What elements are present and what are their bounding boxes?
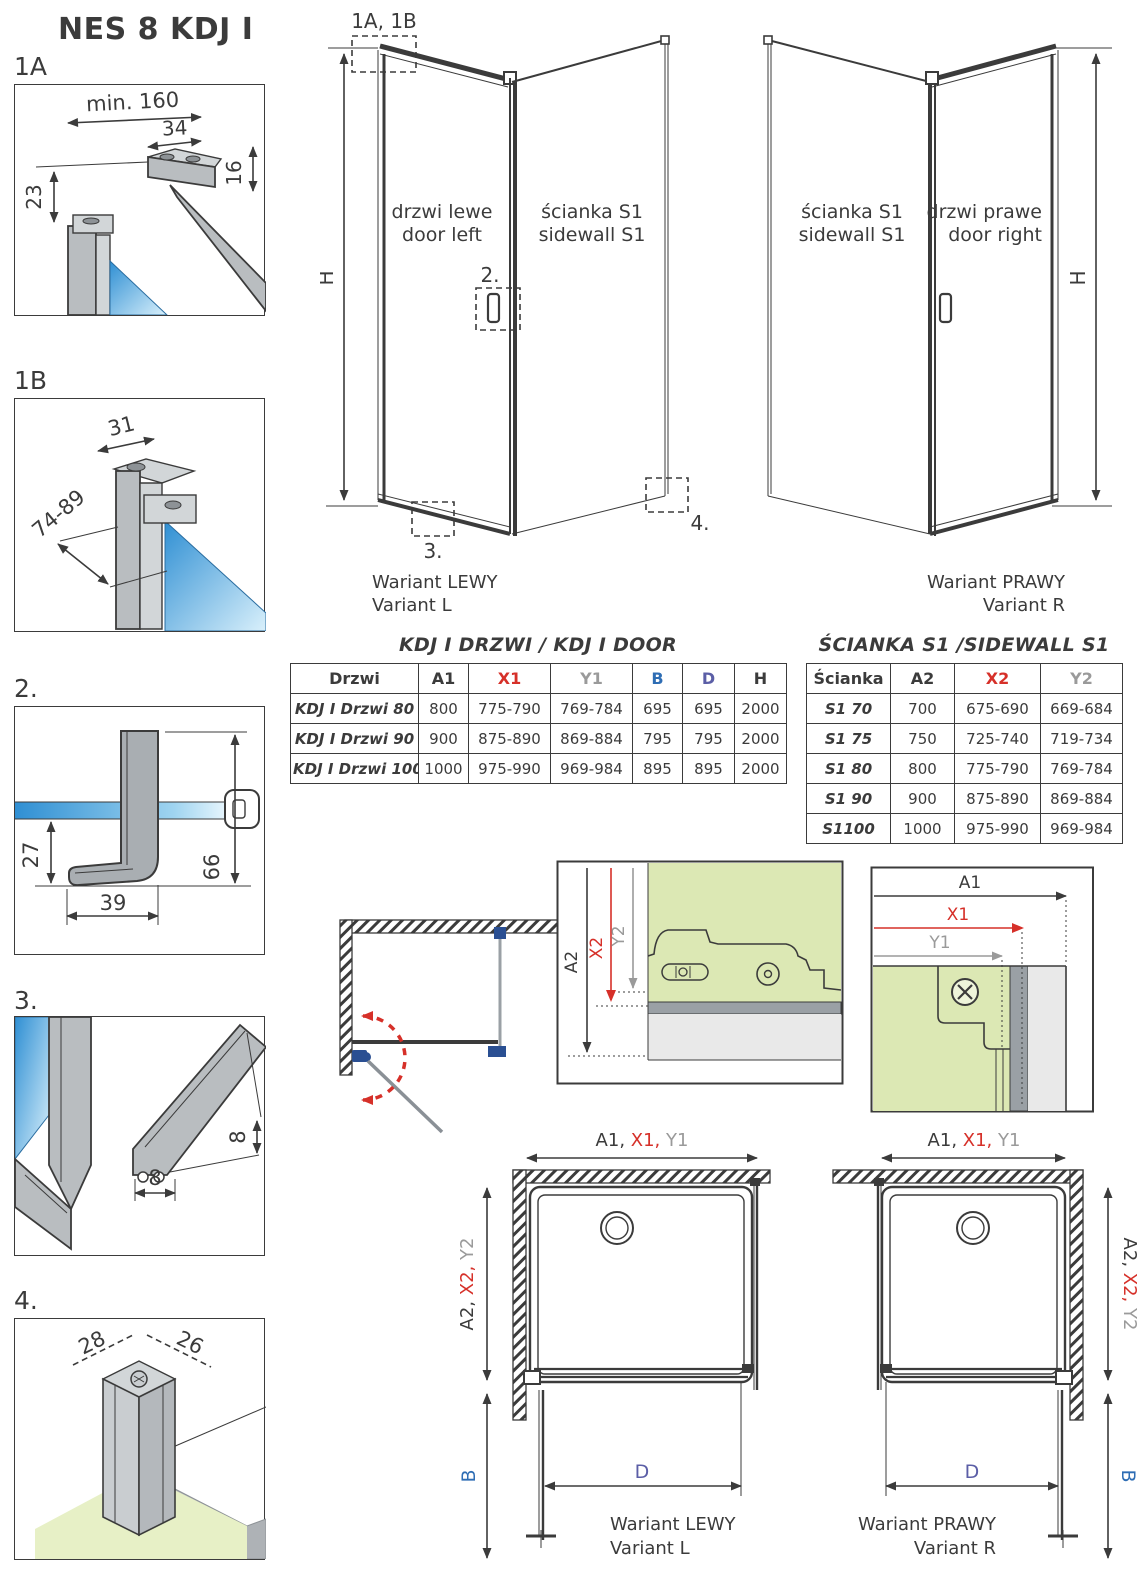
cell: 900 [419, 724, 469, 754]
door-label-pl: drzwi prawe [927, 201, 1042, 223]
side-dimensions: A2, X2, Y2 B [460, 1188, 487, 1558]
height-dimension: H [1052, 48, 1112, 506]
dim-h: H [1066, 270, 1090, 285]
profile-section [648, 863, 841, 1060]
dim-74-89: 74-89 [27, 485, 89, 543]
cell: 775-790 [469, 694, 551, 724]
dim-y2: Y2 [609, 925, 629, 947]
caption-en: Variant L [372, 595, 452, 616]
sidewall-panel [510, 36, 669, 536]
door-label-en: door right [948, 224, 1042, 246]
cell: 675-690 [955, 694, 1041, 724]
wall-bracket-arm [148, 149, 266, 311]
cell: 775-790 [955, 754, 1041, 784]
caption-pl: Wariant LEWY [610, 1514, 736, 1535]
door-label-pl: drzwi lewe [392, 201, 493, 223]
spec-sheet: { "colors": { "ink": "#3b3b3b", "red": "… [0, 0, 1140, 1584]
row-header: S1 75 [807, 724, 891, 754]
dim-d: D [965, 1461, 980, 1483]
door-bottom-corner [15, 1017, 91, 1249]
glass-panel [165, 521, 266, 631]
table-row: S11001000975-990969-984 [807, 814, 1123, 844]
dim-16: 16 [222, 160, 246, 185]
walls [340, 920, 560, 1075]
dim-28: 28 [75, 1326, 110, 1359]
door-label-en: door left [402, 224, 482, 246]
dim-66: 66 [200, 854, 224, 881]
cell: 869-884 [1041, 784, 1123, 814]
dim-x2: X2 [587, 937, 607, 959]
detail-1a-drawing: min. 160 34 16 23 [15, 85, 266, 315]
shower-tray [530, 1187, 752, 1382]
table-row: KDJ I Drzwi 90900875-890869-884795795200… [291, 724, 787, 754]
column-header: X1 [469, 664, 551, 694]
dim-y1: Y1 [665, 1130, 688, 1151]
sidewall-fixing-detail: A2 X2 Y2 [556, 860, 844, 1086]
row-header: KDJ I Drzwi 90 [291, 724, 419, 754]
dim-a1: A1 [959, 873, 981, 893]
cell: 975-990 [955, 814, 1041, 844]
column-header: Y1 [551, 664, 633, 694]
caption-pl: Wariant LEWY [372, 572, 498, 593]
column-header: D [683, 664, 735, 694]
cell: 769-784 [1041, 754, 1123, 784]
plan-caption: Wariant LEWY Variant L [610, 1514, 736, 1559]
sidewall-table-title: ŚCIANKA S1 /SIDEWALL S1 [806, 634, 1122, 656]
dim-31: 31 [105, 411, 137, 441]
header-row: ŚciankaA2X2Y2 [807, 664, 1123, 694]
dim-39: 39 [100, 891, 127, 915]
caption-pl: Wariant PRAWY [858, 1514, 997, 1535]
door-width-dimension: D [545, 1382, 741, 1496]
variant-l-drawing: 1A, 1B 2. 3. 4. H drzwi lewe door left ś… [320, 8, 730, 620]
dim-x1: X1 [947, 905, 969, 925]
cell: 875-890 [955, 784, 1041, 814]
dim-a2: A2, [1119, 1238, 1140, 1273]
detail-1b-figure: 1B 31 74-89 [14, 366, 265, 632]
door-table-title: KDJ I DRZWI / KDJ I DOOR [290, 634, 786, 656]
cell: 719-734 [1041, 724, 1123, 754]
row-header: KDJ I Drzwi 100 [291, 754, 419, 784]
detail-2-figure: 2. 27 [14, 674, 265, 955]
wall-label-pl: ścianka S1 [801, 201, 903, 223]
hinge [1056, 1371, 1072, 1384]
wall-profile [68, 215, 167, 315]
profile-section [873, 966, 1066, 1111]
page-title: NES 8 KDJ I [58, 12, 253, 47]
dim-h: H [320, 270, 338, 285]
handle-end-cap [225, 790, 259, 828]
sidewall-panel [764, 36, 935, 536]
cell: 895 [683, 754, 735, 784]
column-header: A1 [419, 664, 469, 694]
cell: 2000 [735, 724, 787, 754]
dim-y1: Y1 [997, 1130, 1020, 1151]
cell: 869-884 [551, 724, 633, 754]
cell: 800 [891, 754, 955, 784]
row-header: S1 80 [807, 754, 891, 784]
dim-b: B [460, 1469, 480, 1482]
dim-min-160: min. 160 [86, 88, 180, 117]
column-header: X2 [955, 664, 1041, 694]
cell: 695 [633, 694, 683, 724]
detail-3-drawing: 8 8 [15, 1017, 266, 1255]
dim-8-vertical: 8 [226, 1130, 250, 1143]
detail-2-drawing: 27 39 66 [15, 707, 266, 954]
panel-labels: drzwi lewe door left ścianka S1 sidewall… [392, 201, 646, 246]
row-header: S1 90 [807, 784, 891, 814]
door-table-section: KDJ I DRZWI / KDJ I DOOR DrzwiA1X1Y1BDH … [290, 634, 786, 784]
table-row: S1 70700675-690669-684 [807, 694, 1123, 724]
dim-x2: X2, [1119, 1273, 1140, 1308]
cell: 975-990 [469, 754, 551, 784]
table-row: KDJ I Drzwi 80800775-790769-784695695200… [291, 694, 787, 724]
cell: 700 [891, 694, 955, 724]
door-width-dimension: D [886, 1382, 1058, 1496]
dim-a1: A1, [928, 1130, 963, 1151]
shower-tray [882, 1187, 1065, 1382]
detail-2-label: 2. [14, 674, 265, 703]
plan-view-variant-r: A1, X1, Y1 A2, X2, Y2 B D Waria [800, 1128, 1140, 1584]
cell: 900 [891, 784, 955, 814]
table-row: S1 90900875-890869-884 [807, 784, 1123, 814]
cell: 725-740 [955, 724, 1041, 754]
dimension-lines: min. 160 34 16 23 [22, 88, 253, 222]
column-header: A2 [891, 664, 955, 694]
table-row: S1 75750725-740719-734 [807, 724, 1123, 754]
corner-profile [103, 1361, 175, 1535]
dim-a2: A2 [562, 951, 582, 973]
row-header: KDJ I Drzwi 80 [291, 694, 419, 724]
sidewall-size-table: ŚciankaA2X2Y2 S1 70700675-690669-684S1 7… [806, 663, 1123, 844]
detail-1a-label: 1A [14, 52, 265, 81]
cell: 2000 [735, 694, 787, 724]
detail-3-figure: 8 8 3. [14, 986, 265, 1256]
detail-1a-figure: 1A min. 160 34 [14, 52, 265, 316]
row-header: S1 70 [807, 694, 891, 724]
detail-3-label: 3. [14, 986, 38, 1015]
detail-4-label: 4. [14, 1286, 265, 1315]
cell: 695 [683, 694, 735, 724]
dim-y2: Y2 [460, 1238, 478, 1261]
dim-34: 34 [161, 115, 188, 140]
dim-y2: Y2 [1119, 1307, 1140, 1330]
dim-x1: X1, [631, 1130, 666, 1151]
column-header: Y2 [1041, 664, 1123, 694]
row-header: S1100 [807, 814, 891, 844]
plan-caption: Wariant PRAWY Variant R [858, 1514, 997, 1559]
cell: 875-890 [469, 724, 551, 754]
dim-d: D [635, 1461, 650, 1483]
dim-a2: A2, [460, 1295, 478, 1330]
dim-b: B [1117, 1469, 1139, 1482]
wall-label-en: sidewall S1 [539, 224, 646, 246]
wall-label-pl: ścianka S1 [541, 201, 643, 223]
dim-a1: A1, [596, 1130, 631, 1151]
detail-4-drawing: 28 26 [15, 1319, 266, 1559]
caption-en: Variant R [983, 595, 1065, 616]
dim-y1: Y1 [928, 933, 950, 953]
wall-label-en: sidewall S1 [799, 224, 906, 246]
sidewall-table-section: ŚCIANKA S1 /SIDEWALL S1 ŚciankaA2X2Y2 S1… [806, 634, 1122, 844]
plan-side-dimension: A2, X2, Y2 [1119, 1238, 1140, 1331]
door-fixing-detail: A1 X1 Y1 [870, 866, 1096, 1114]
cell: 2000 [735, 754, 787, 784]
dim-23: 23 [22, 184, 46, 209]
door-size-table: DrzwiA1X1Y1BDH KDJ I Drzwi 80800775-7907… [290, 663, 787, 784]
height-dimension: H [320, 48, 378, 506]
callout-3: 3. [423, 539, 442, 563]
cell: 795 [633, 724, 683, 754]
detail-4-figure: 4. 28 26 [14, 1286, 265, 1560]
callout-1ab: 1A, 1B [351, 9, 417, 33]
cell: 1000 [891, 814, 955, 844]
dim-x1: X1, [963, 1130, 998, 1151]
door-left-panel [378, 46, 516, 534]
caption-pl: Wariant PRAWY [927, 572, 1066, 593]
table-row: S1 80800775-790769-784 [807, 754, 1123, 784]
side-dimensions: A2, X2, Y2 B [1108, 1188, 1140, 1558]
variant-r-drawing: H ścianka S1 sidewall S1 drzwi prawe doo… [740, 8, 1140, 620]
plan-top-dimension: A1, X1, Y1 [928, 1130, 1021, 1151]
caption-en: Variant L [610, 1538, 690, 1559]
dim-26: 26 [173, 1326, 208, 1359]
cell: 669-684 [1041, 694, 1123, 724]
caption-en: Variant R [914, 1538, 996, 1559]
bottom-seal-profile [133, 1025, 266, 1182]
variant-caption: Wariant LEWY Variant L [372, 572, 498, 616]
door-open [526, 1390, 556, 1548]
column-header: B [633, 664, 683, 694]
dim-x2: X2, [460, 1260, 478, 1295]
table-row: KDJ I Drzwi 1001000975-990969-9848958952… [291, 754, 787, 784]
panel-labels: ścianka S1 sidewall S1 drzwi prawe door … [799, 201, 1042, 246]
column-header: H [735, 664, 787, 694]
cell: 969-984 [551, 754, 633, 784]
detail-1b-drawing: 31 74-89 [15, 399, 266, 631]
cell: 795 [683, 724, 735, 754]
detail-1b-label: 1B [14, 366, 265, 395]
cell: 1000 [419, 754, 469, 784]
callout-2: 2. [480, 263, 499, 287]
plan-side-dimension: A2, X2, Y2 [460, 1238, 478, 1331]
door-swing-plan-sketch [330, 900, 565, 1150]
dim-8-horizontal: 8 [148, 1166, 161, 1190]
door-handle [488, 294, 499, 322]
door-handle [940, 294, 951, 322]
dimension-lines: 28 26 [73, 1326, 211, 1367]
column-header: Ścianka [807, 664, 891, 694]
door-right-panel [926, 46, 1058, 534]
callout-4: 4. [690, 511, 709, 535]
plan-top-dimension: A1, X1, Y1 [596, 1130, 689, 1151]
cell: 895 [633, 754, 683, 784]
hinge [524, 1371, 540, 1384]
variant-caption: Wariant PRAWY Variant R [927, 572, 1066, 616]
cell: 750 [891, 724, 955, 754]
cell: 969-984 [1041, 814, 1123, 844]
dim-27: 27 [19, 842, 43, 869]
cell: 769-784 [551, 694, 633, 724]
detail-callouts: 1A, 1B 2. 3. 4. [351, 9, 709, 563]
header-row: DrzwiA1X1Y1BDH [291, 664, 787, 694]
cell: 800 [419, 694, 469, 724]
plan-view-variant-l: A1, X1, Y1 A2, X2, Y2 B D Waria [460, 1128, 780, 1584]
column-header: Drzwi [291, 664, 419, 694]
